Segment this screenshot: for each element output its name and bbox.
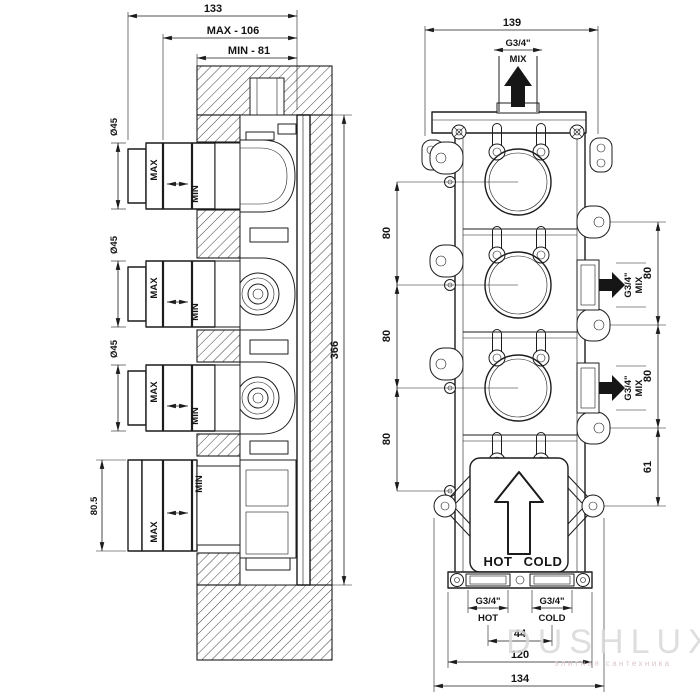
handle-2-max-label: MAX bbox=[149, 277, 160, 299]
watermark-brand: DUSHLUX bbox=[506, 623, 700, 661]
right-tab-3 bbox=[577, 412, 610, 444]
module-joint-1 bbox=[250, 228, 288, 242]
right-view-body: HOT COLD bbox=[397, 56, 646, 588]
dim-depth-min: MIN - 81 bbox=[228, 45, 270, 57]
handle-3: MAX MIN bbox=[128, 365, 240, 431]
dim-depth-total: 133 bbox=[204, 3, 222, 15]
handle-4: MIN MAX bbox=[128, 460, 240, 551]
top-outlet-stub bbox=[250, 78, 284, 115]
technical-drawing-page: MAX MIN MAX MIN MAX MIN MIN MAX 133 bbox=[0, 0, 700, 700]
hot-inlet-thread: G3/4" bbox=[475, 596, 500, 607]
cold-inlet-thread: G3/4" bbox=[539, 596, 564, 607]
watermark: DUSHLUX элитная сантехника bbox=[506, 623, 700, 668]
handle-4-max-label: MAX bbox=[149, 521, 160, 543]
side-port-2-flow: MIX bbox=[634, 379, 645, 397]
handle-1-max-label: MAX bbox=[149, 159, 160, 181]
handle-4-min-label: MIN bbox=[194, 475, 205, 493]
bracket-screw-right bbox=[570, 125, 584, 139]
hot-inlet-label: HOT bbox=[478, 613, 498, 624]
handle-2: MAX MIN bbox=[128, 261, 240, 327]
dim-depth-max: MAX - 106 bbox=[207, 25, 260, 37]
left-view-valve-body bbox=[237, 78, 310, 585]
dim-width-overall: 134 bbox=[511, 673, 530, 685]
right-tab-2 bbox=[577, 309, 610, 341]
handle-2-min-label: MIN bbox=[190, 303, 201, 321]
side-port-1-thread: G3/4" bbox=[623, 272, 634, 297]
bottom-rail bbox=[448, 572, 592, 588]
side-outlet-2-arrow-icon bbox=[599, 375, 625, 401]
bracket-screw-left bbox=[452, 125, 466, 139]
dim-chain-left-3: 80 bbox=[381, 433, 393, 445]
module-joint-3 bbox=[250, 441, 288, 454]
side-outlet-1-arrow-icon bbox=[599, 272, 625, 298]
top-port-flow: MIX bbox=[510, 54, 528, 65]
left-tab-1 bbox=[430, 142, 463, 174]
valve-installation-diagram: MAX MIN MAX MIN MAX MIN MIN MAX 133 bbox=[0, 0, 700, 700]
handle-1: MAX MIN bbox=[128, 143, 240, 209]
dim-knob1-diameter: Ø45 bbox=[109, 117, 120, 136]
side-port-1-flow: MIX bbox=[634, 276, 645, 294]
dim-bottom-handle: 80.5 bbox=[89, 496, 100, 515]
dim-chain-left-1: 80 bbox=[381, 227, 393, 239]
bottom-cover-plate: HOT COLD bbox=[470, 458, 568, 572]
dim-chain-left-2: 80 bbox=[381, 330, 393, 342]
rail-eyelets bbox=[445, 177, 456, 497]
dim-chain-right-3: 61 bbox=[642, 461, 654, 473]
watermark-tagline: элитная сантехника bbox=[554, 659, 671, 668]
dim-width-top: 139 bbox=[503, 17, 521, 29]
side-port-2-thread: G3/4" bbox=[623, 375, 634, 400]
plate-hot-label: HOT bbox=[484, 554, 513, 569]
right-tab-1 bbox=[577, 206, 610, 238]
dim-height-total: 366 bbox=[329, 341, 341, 359]
module-joint-2 bbox=[250, 340, 288, 354]
top-port-thread: G3/4" bbox=[505, 38, 530, 49]
handle-3-min-label: MIN bbox=[190, 407, 201, 425]
dim-knob2-diameter: Ø45 bbox=[109, 235, 120, 254]
left-tab-3 bbox=[430, 348, 463, 380]
handle-3-max-label: MAX bbox=[149, 381, 160, 403]
dim-knob3-diameter: Ø45 bbox=[109, 339, 120, 358]
top-mix-arrow-icon bbox=[504, 66, 532, 107]
left-tab-2 bbox=[430, 245, 463, 277]
plate-cold-label: COLD bbox=[524, 554, 563, 569]
handle-1-min-label: MIN bbox=[190, 185, 201, 203]
